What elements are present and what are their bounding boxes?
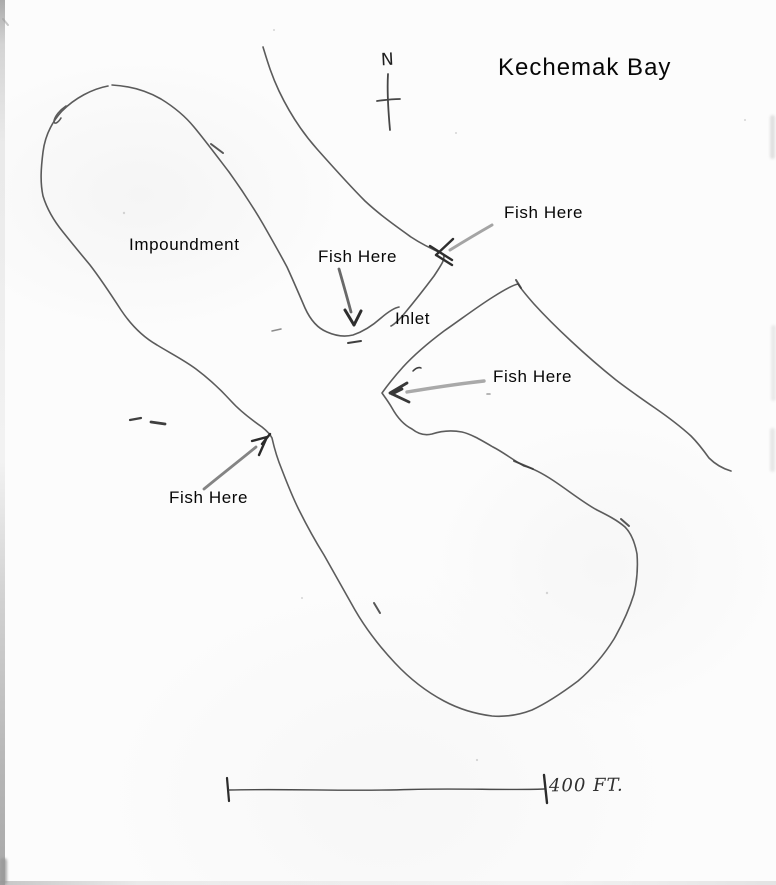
- dash-mark: [151, 422, 165, 424]
- speck: [476, 759, 478, 761]
- speck: [546, 592, 548, 594]
- dash-mark: [413, 368, 421, 371]
- pencil-sketch-layer: [0, 0, 776, 885]
- fish-here-label-bay-point: Fish Here: [504, 204, 583, 221]
- north-label: N: [381, 52, 395, 70]
- speck: [744, 119, 746, 121]
- arrow-shaft: [339, 269, 351, 312]
- scale-bar-label: 400 FT.: [549, 777, 624, 796]
- arrow-shaft: [407, 381, 484, 392]
- north-cross-vertical: [388, 74, 390, 130]
- dash-mark: [130, 418, 141, 420]
- tick-mark: [374, 603, 380, 613]
- speck: [123, 212, 125, 214]
- arrow-head: [252, 434, 270, 455]
- inlet-label: Inlet: [395, 310, 430, 327]
- stray-dashes: [3, 19, 490, 424]
- arrow-shaft: [204, 447, 256, 489]
- fish-here-label-peninsula-tip: Fish Here: [493, 368, 572, 385]
- north-cross-icon: [377, 74, 400, 130]
- impoundment-northeast-shore: [112, 85, 399, 336]
- arrow-head: [430, 239, 453, 265]
- impoundment-and-peninsula-outline: [41, 86, 731, 716]
- paper-specks: [123, 29, 746, 761]
- impoundment-label: Impoundment: [129, 236, 240, 253]
- dash-mark: [3, 19, 8, 25]
- speck: [455, 132, 457, 134]
- tick-mark: [514, 461, 533, 469]
- fish-here-label-narrows: Fish Here: [169, 489, 248, 506]
- map-title: Kechemak Bay: [498, 56, 671, 80]
- scale-bar: [227, 775, 547, 803]
- dash-mark: [348, 341, 361, 343]
- shorelines: [41, 47, 731, 716]
- scanned-fishing-map: Kechemak Bay N Impoundment Fish Here Fis…: [0, 0, 776, 885]
- arrow-head: [345, 310, 361, 325]
- dash-mark: [272, 329, 281, 331]
- fish-here-label-cove: Fish Here: [318, 248, 397, 265]
- speck: [301, 597, 303, 599]
- scale-bar-right-tick: [544, 775, 547, 803]
- bay-shoreline: [263, 47, 444, 326]
- scale-bar-line: [229, 789, 544, 790]
- speck: [273, 29, 275, 31]
- arrow-shaft: [450, 225, 492, 250]
